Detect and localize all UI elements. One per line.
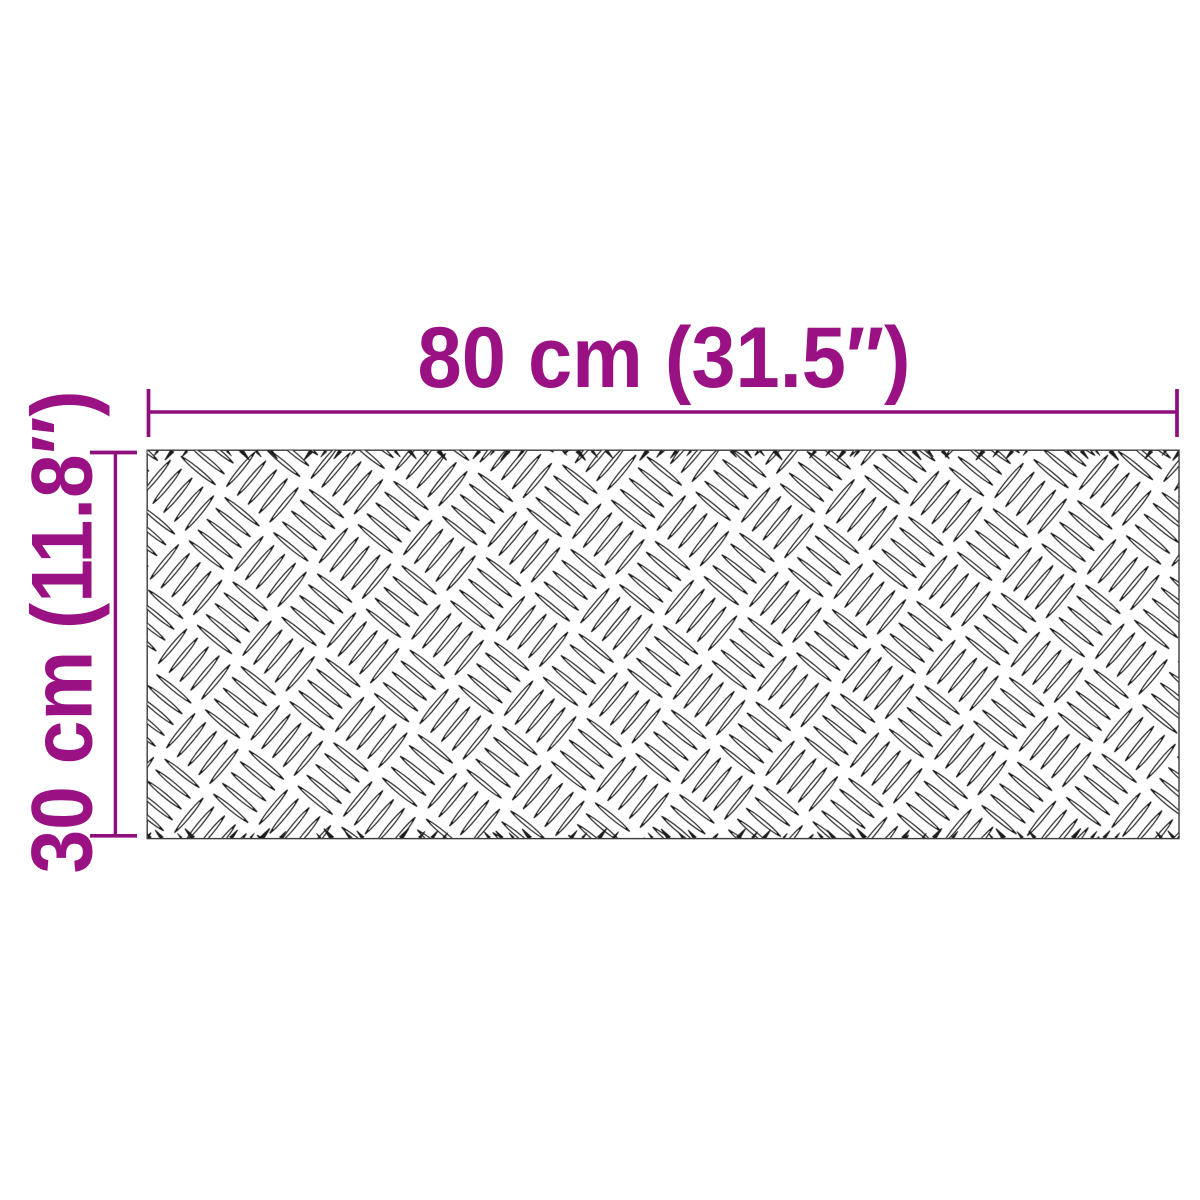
svg-text:30 cm (11.8″): 30 cm (11.8″): [15, 391, 111, 874]
svg-text:80 cm (31.5″): 80 cm (31.5″): [418, 310, 911, 406]
